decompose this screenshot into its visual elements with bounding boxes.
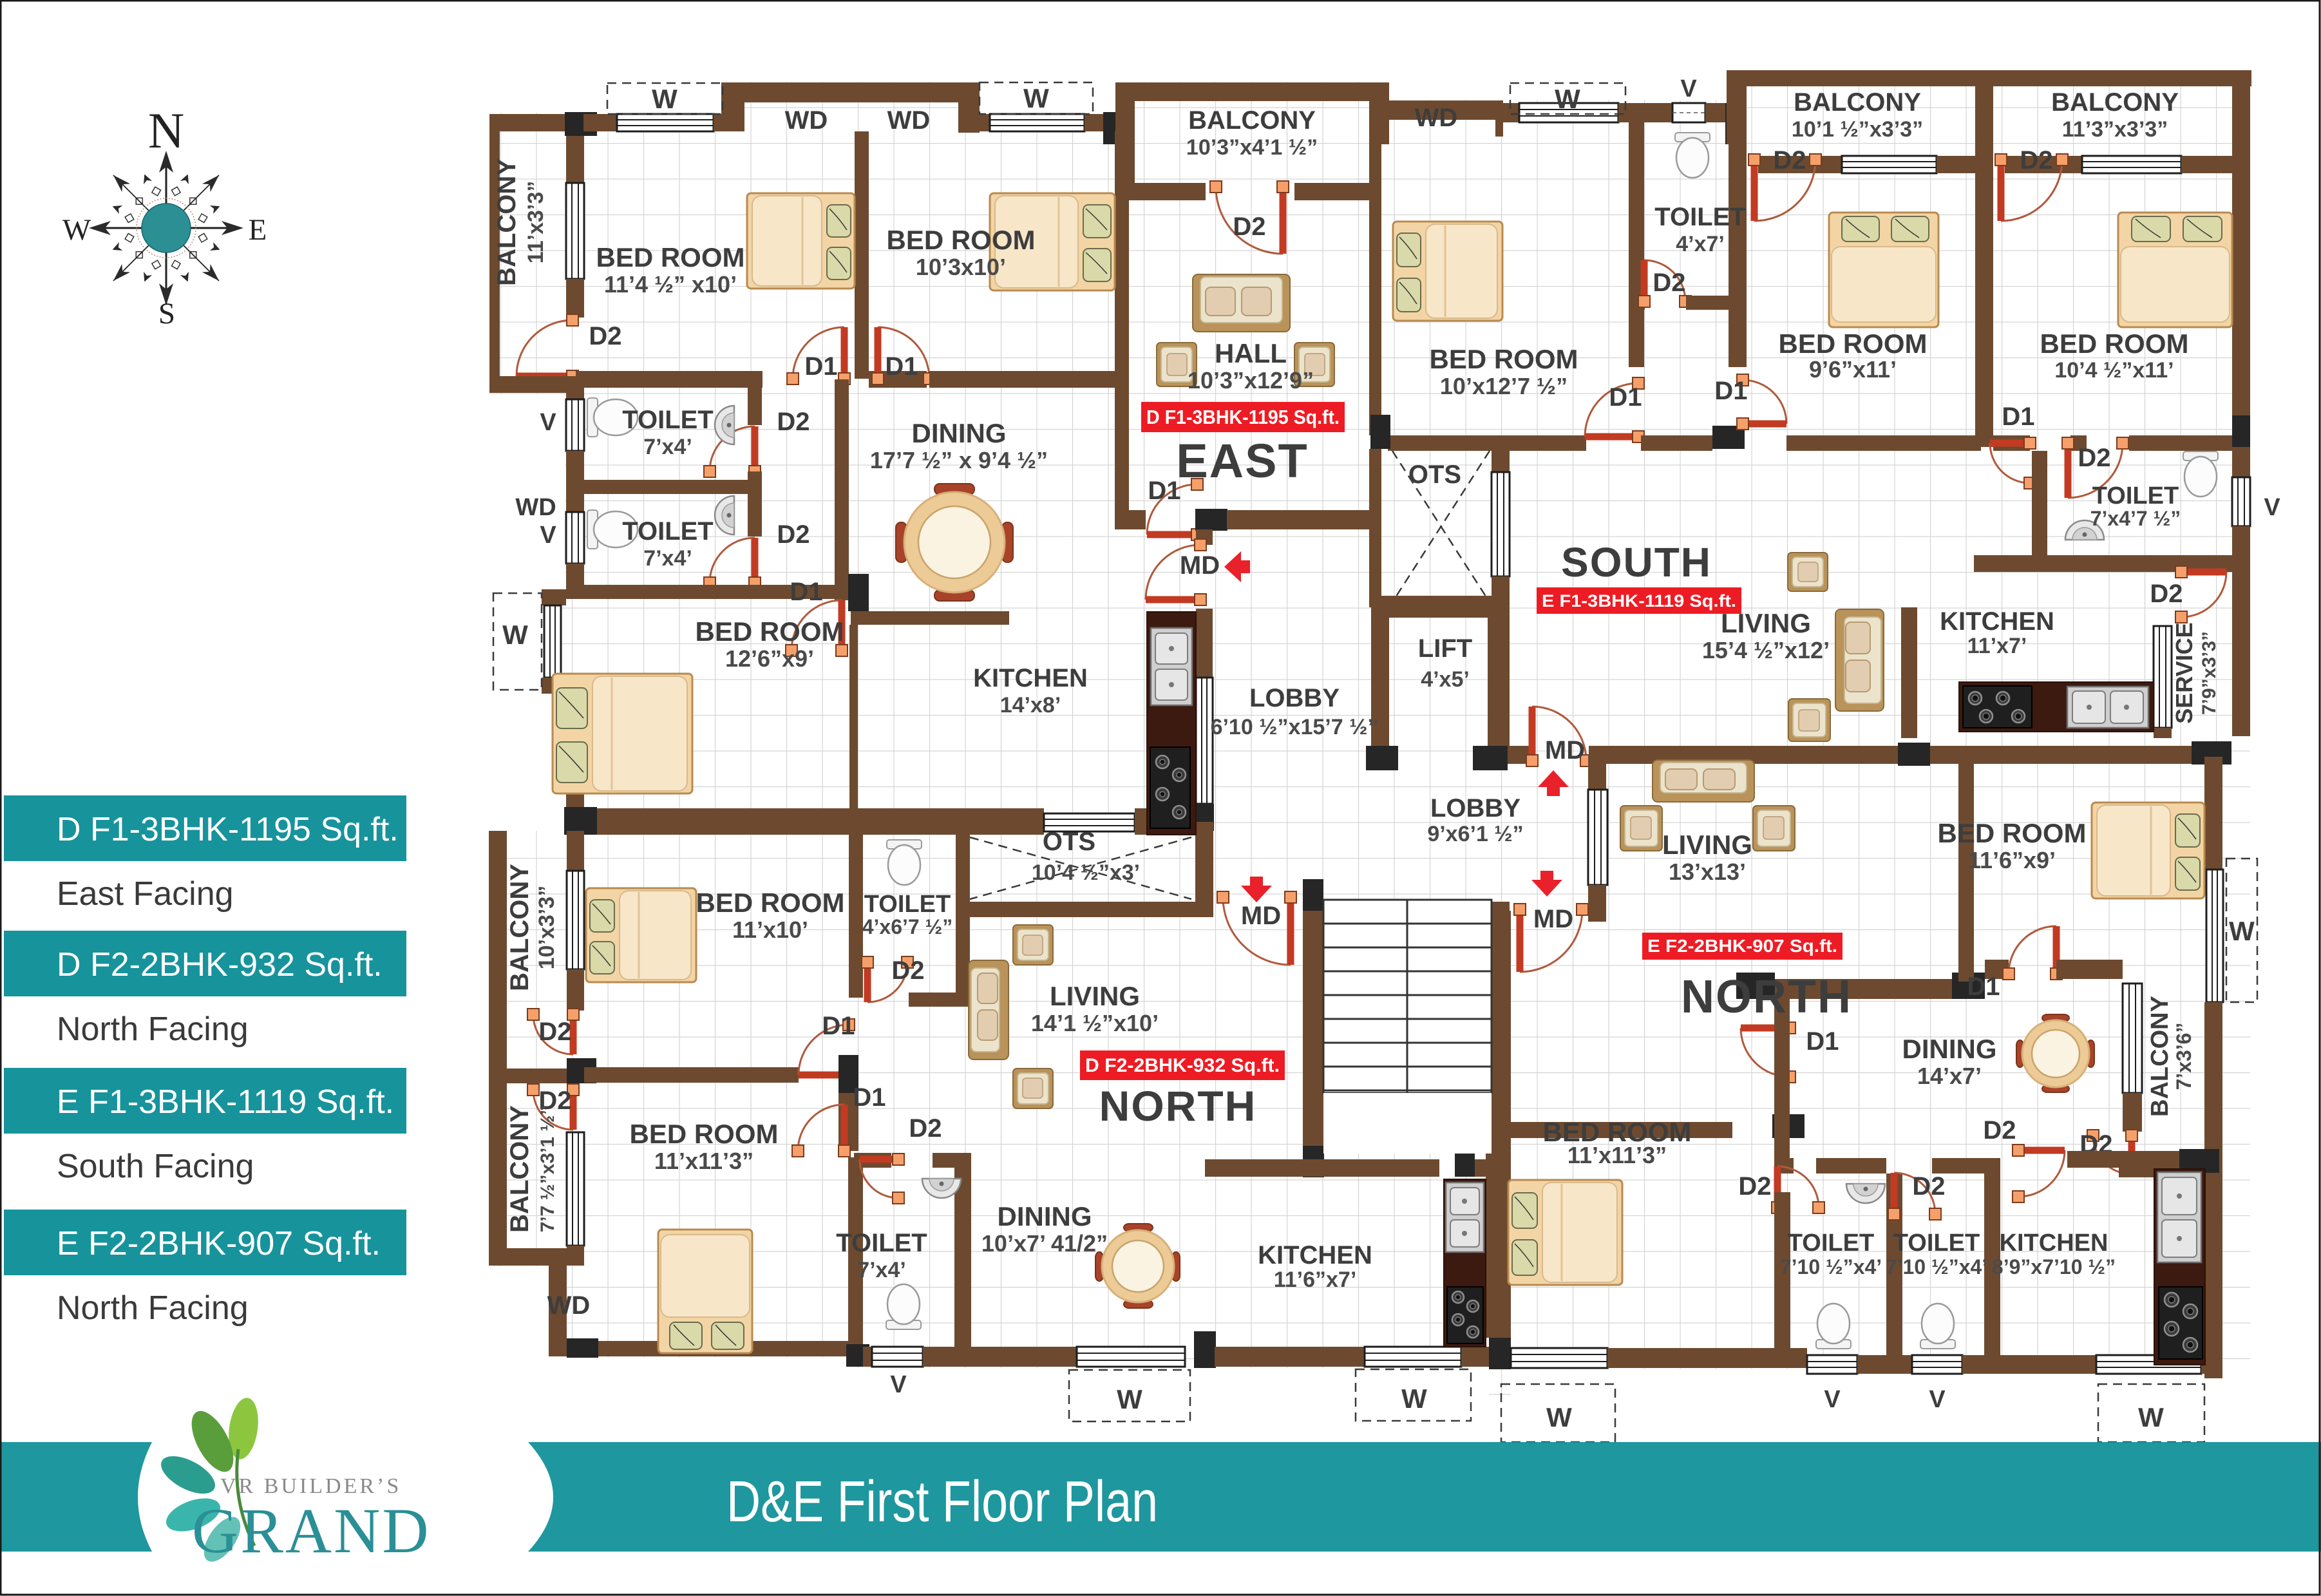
svg-text:N: N	[148, 102, 184, 158]
svg-text:10’4 ½”x11’: 10’4 ½”x11’	[2054, 358, 2174, 383]
svg-text:7’x4’7 ½”: 7’x4’7 ½”	[2090, 507, 2181, 530]
svg-text:W: W	[62, 213, 91, 247]
svg-text:V: V	[540, 522, 556, 549]
svg-text:D2: D2	[589, 322, 621, 350]
svg-text:D&E First Floor Plan: D&E First Floor Plan	[726, 1470, 1158, 1534]
svg-text:11’x11’3”: 11’x11’3”	[654, 1148, 753, 1174]
svg-text:KITCHEN: KITCHEN	[1940, 607, 2054, 636]
svg-text:North Facing: North Facing	[57, 1289, 249, 1327]
svg-text:D2: D2	[777, 520, 810, 549]
svg-text:S: S	[158, 297, 175, 330]
svg-text:10’x12’7 ½”: 10’x12’7 ½”	[1440, 373, 1568, 399]
svg-text:10’3”x12’9”: 10’3”x12’9”	[1188, 367, 1314, 394]
svg-text:SOUTH: SOUTH	[1561, 539, 1712, 585]
svg-text:TOILET: TOILET	[836, 1229, 927, 1257]
svg-text:E F1-3BHK-1119 Sq.ft.: E F1-3BHK-1119 Sq.ft.	[1542, 591, 1736, 611]
svg-text:13’x13’: 13’x13’	[1669, 859, 1746, 885]
svg-text:BALCONY: BALCONY	[1794, 88, 1921, 117]
svg-text:LIFT: LIFT	[1418, 634, 1472, 663]
svg-text:D1: D1	[804, 352, 837, 381]
svg-text:TOILET: TOILET	[864, 891, 951, 918]
svg-text:D2: D2	[538, 1018, 571, 1046]
svg-text:North Facing: North Facing	[57, 1011, 249, 1048]
svg-text:D F2-2BHK-932 Sq.ft.: D F2-2BHK-932 Sq.ft.	[57, 946, 383, 983]
svg-text:WD: WD	[547, 1291, 591, 1320]
svg-text:D2: D2	[2150, 580, 2183, 608]
svg-text:D2: D2	[909, 1114, 942, 1143]
svg-text:E F2-2BHK-907 Sq.ft.: E F2-2BHK-907 Sq.ft.	[57, 1225, 381, 1262]
svg-text:W: W	[1117, 1384, 1142, 1414]
svg-text:7’x3’6”: 7’x3’6”	[2172, 1023, 2195, 1090]
svg-text:W: W	[2138, 1402, 2164, 1432]
svg-text:BALCONY: BALCONY	[2051, 88, 2179, 117]
svg-text:KITCHEN: KITCHEN	[973, 664, 1088, 692]
svg-text:BED ROOM: BED ROOM	[696, 888, 845, 918]
svg-text:D1: D1	[1967, 973, 2000, 1001]
svg-text:7’10 ½”x4’: 7’10 ½”x4’	[1780, 1255, 1882, 1278]
svg-text:4’x5’: 4’x5’	[1421, 667, 1470, 692]
svg-text:10’x7’ 41/2”: 10’x7’ 41/2”	[981, 1230, 1108, 1257]
svg-text:D F1-3BHK-1195 Sq.ft.: D F1-3BHK-1195 Sq.ft.	[1146, 406, 1340, 428]
svg-text:12’6”x9’: 12’6”x9’	[725, 645, 814, 672]
svg-text:V: V	[2264, 494, 2280, 521]
svg-text:V: V	[540, 409, 556, 436]
svg-text:W: W	[502, 620, 528, 650]
svg-text:TOILET: TOILET	[1654, 203, 1745, 231]
svg-text:NORTH: NORTH	[1099, 1082, 1257, 1130]
svg-text:South Facing: South Facing	[57, 1148, 254, 1185]
svg-text:D2: D2	[1233, 213, 1265, 241]
svg-text:D2: D2	[2020, 146, 2052, 175]
svg-text:D2: D2	[1738, 1172, 1771, 1201]
svg-text:LIVING: LIVING	[1050, 981, 1140, 1011]
svg-text:D2: D2	[1983, 1116, 2016, 1145]
svg-text:DINING: DINING	[998, 1201, 1092, 1231]
svg-text:East Facing: East Facing	[57, 875, 234, 913]
svg-text:BED ROOM: BED ROOM	[1938, 818, 2087, 848]
svg-text:9’6”x11’: 9’6”x11’	[1809, 356, 1897, 383]
svg-text:BED ROOM: BED ROOM	[596, 242, 745, 272]
svg-text:MD: MD	[1533, 905, 1573, 933]
svg-text:11’4 ½” x10’: 11’4 ½” x10’	[604, 271, 737, 298]
svg-text:LOBBY: LOBBY	[1249, 684, 1340, 712]
svg-text:BALCONY: BALCONY	[493, 158, 521, 286]
svg-text:SERVICE: SERVICE	[2171, 622, 2197, 723]
svg-text:MD: MD	[1180, 551, 1220, 580]
svg-text:TOILET: TOILET	[1788, 1230, 1874, 1257]
svg-text:D F2-2BHK-932 Sq.ft.: D F2-2BHK-932 Sq.ft.	[1085, 1055, 1280, 1076]
svg-text:17’7 ½” x 9’4 ½”: 17’7 ½” x 9’4 ½”	[870, 447, 1048, 473]
svg-text:KITCHEN: KITCHEN	[2000, 1230, 2108, 1257]
svg-text:DINING: DINING	[1902, 1034, 1997, 1064]
svg-text:W: W	[1555, 84, 1580, 114]
svg-text:LOBBY: LOBBY	[1430, 794, 1520, 822]
svg-text:14’x7’: 14’x7’	[1917, 1063, 1982, 1089]
svg-text:D2: D2	[777, 408, 810, 436]
svg-text:D1: D1	[885, 352, 918, 381]
svg-text:E F1-3BHK-1119 Sq.ft.: E F1-3BHK-1119 Sq.ft.	[57, 1083, 394, 1121]
svg-text:W: W	[652, 84, 677, 114]
svg-text:7’x4’: 7’x4’	[643, 435, 692, 459]
svg-text:V: V	[890, 1371, 907, 1398]
svg-text:MD: MD	[1241, 902, 1281, 930]
svg-text:W: W	[2229, 916, 2255, 946]
svg-text:7’9”x3’3”: 7’9”x3’3”	[2199, 631, 2220, 715]
svg-text:6’10 ½”x15’7 ½”: 6’10 ½”x15’7 ½”	[1211, 715, 1379, 739]
svg-text:D2: D2	[1773, 146, 1806, 175]
svg-text:BED ROOM: BED ROOM	[2040, 328, 2189, 359]
svg-text:D1: D1	[1806, 1027, 1839, 1056]
svg-text:7’7 ½”x3’1 ½”: 7’7 ½”x3’1 ½”	[537, 1106, 558, 1233]
svg-text:W: W	[1546, 1402, 1572, 1432]
svg-text:15’4 ½”x12’: 15’4 ½”x12’	[1702, 637, 1830, 663]
svg-text:LIVING: LIVING	[1721, 608, 1811, 638]
svg-text:11’x7’: 11’x7’	[1967, 634, 2027, 658]
svg-text:V: V	[1929, 1386, 1946, 1413]
svg-text:V: V	[1824, 1386, 1841, 1413]
svg-text:W: W	[1023, 83, 1049, 113]
svg-text:D1: D1	[790, 578, 822, 606]
svg-text:BALCONY: BALCONY	[506, 864, 534, 991]
svg-text:BED ROOM: BED ROOM	[630, 1119, 779, 1149]
svg-text:10’4 ½”x3’: 10’4 ½”x3’	[1032, 860, 1140, 885]
svg-text:7’x4’: 7’x4’	[643, 546, 692, 571]
svg-text:TOILET: TOILET	[2092, 482, 2179, 509]
svg-text:BED ROOM: BED ROOM	[887, 225, 1036, 255]
svg-text:OTS: OTS	[1043, 828, 1095, 856]
svg-text:D2: D2	[1912, 1172, 1945, 1201]
svg-text:WD: WD	[785, 106, 828, 135]
svg-text:10’x3’3”: 10’x3’3”	[535, 886, 559, 969]
svg-text:W: W	[1401, 1383, 1427, 1414]
svg-text:D1: D1	[2002, 403, 2034, 431]
svg-text:11’x3’3”: 11’x3’3”	[524, 181, 548, 264]
svg-text:OTS: OTS	[1408, 461, 1461, 489]
svg-text:DINING: DINING	[912, 418, 1007, 448]
svg-text:EAST: EAST	[1176, 434, 1308, 488]
svg-text:GRAND: GRAND	[192, 1495, 431, 1566]
svg-text:D1: D1	[822, 1012, 855, 1040]
svg-text:D1: D1	[1609, 383, 1642, 412]
svg-text:11’3”x3’3”: 11’3”x3’3”	[2062, 117, 2168, 142]
svg-text:BALCONY: BALCONY	[506, 1105, 534, 1233]
svg-text:BED ROOM: BED ROOM	[1430, 344, 1578, 374]
svg-text:11’6”x7’: 11’6”x7’	[1274, 1268, 1357, 1292]
svg-text:TOILET: TOILET	[622, 517, 713, 546]
svg-text:E: E	[249, 213, 267, 247]
svg-text:NORTH: NORTH	[1681, 971, 1852, 1023]
svg-text:4’x7’: 4’x7’	[1676, 232, 1725, 256]
svg-text:D1: D1	[1714, 377, 1747, 405]
svg-text:10’1 ½”x3’3”: 10’1 ½”x3’3”	[1792, 117, 1923, 142]
svg-text:D2: D2	[891, 956, 924, 985]
svg-text:11’6”x9’: 11’6”x9’	[1968, 847, 2056, 873]
svg-text:BALCONY: BALCONY	[2146, 996, 2174, 1117]
svg-text:10’3x10’: 10’3x10’	[916, 254, 1006, 280]
svg-text:D1: D1	[853, 1083, 886, 1112]
svg-text:KITCHEN: KITCHEN	[1258, 1241, 1372, 1269]
svg-text:9’x6’1 ½”: 9’x6’1 ½”	[1427, 822, 1523, 846]
svg-text:MD: MD	[1545, 736, 1585, 765]
svg-text:7’x4’: 7’x4’	[857, 1258, 906, 1282]
svg-text:TOILET: TOILET	[622, 406, 713, 434]
svg-text:TOILET: TOILET	[1893, 1230, 1980, 1257]
svg-text:E F2-2BHK-907 Sq.ft.: E F2-2BHK-907 Sq.ft.	[1647, 936, 1837, 956]
svg-text:14’1 ½”x10’: 14’1 ½”x10’	[1031, 1010, 1159, 1036]
svg-text:D2: D2	[1653, 269, 1685, 297]
svg-text:7’10 ½”x4’: 7’10 ½”x4’	[1886, 1255, 1987, 1278]
svg-text:V: V	[1680, 75, 1697, 102]
svg-text:10’3”x4’1 ½”: 10’3”x4’1 ½”	[1186, 135, 1318, 160]
svg-text:WD: WD	[1415, 104, 1458, 132]
svg-text:BED ROOM: BED ROOM	[1779, 328, 1928, 359]
svg-text:WD: WD	[515, 494, 556, 521]
svg-text:LIVING: LIVING	[1662, 830, 1752, 860]
svg-text:8’9”x7’10 ½”: 8’9”x7’10 ½”	[1992, 1255, 2116, 1278]
svg-text:D2: D2	[2078, 444, 2110, 472]
svg-text:D F1-3BHK-1195 Sq.ft.: D F1-3BHK-1195 Sq.ft.	[57, 811, 399, 848]
svg-text:11’x10’: 11’x10’	[732, 917, 808, 943]
svg-text:14’x8’: 14’x8’	[1000, 693, 1061, 717]
svg-text:11’x11’3”: 11’x11’3”	[1568, 1142, 1667, 1168]
svg-text:BED ROOM: BED ROOM	[696, 616, 844, 647]
svg-text:HALL: HALL	[1215, 338, 1287, 368]
svg-text:WD: WD	[887, 106, 931, 135]
svg-text:4’x6’7 ½”: 4’x6’7 ½”	[862, 915, 953, 938]
svg-text:BALCONY: BALCONY	[1188, 106, 1316, 135]
